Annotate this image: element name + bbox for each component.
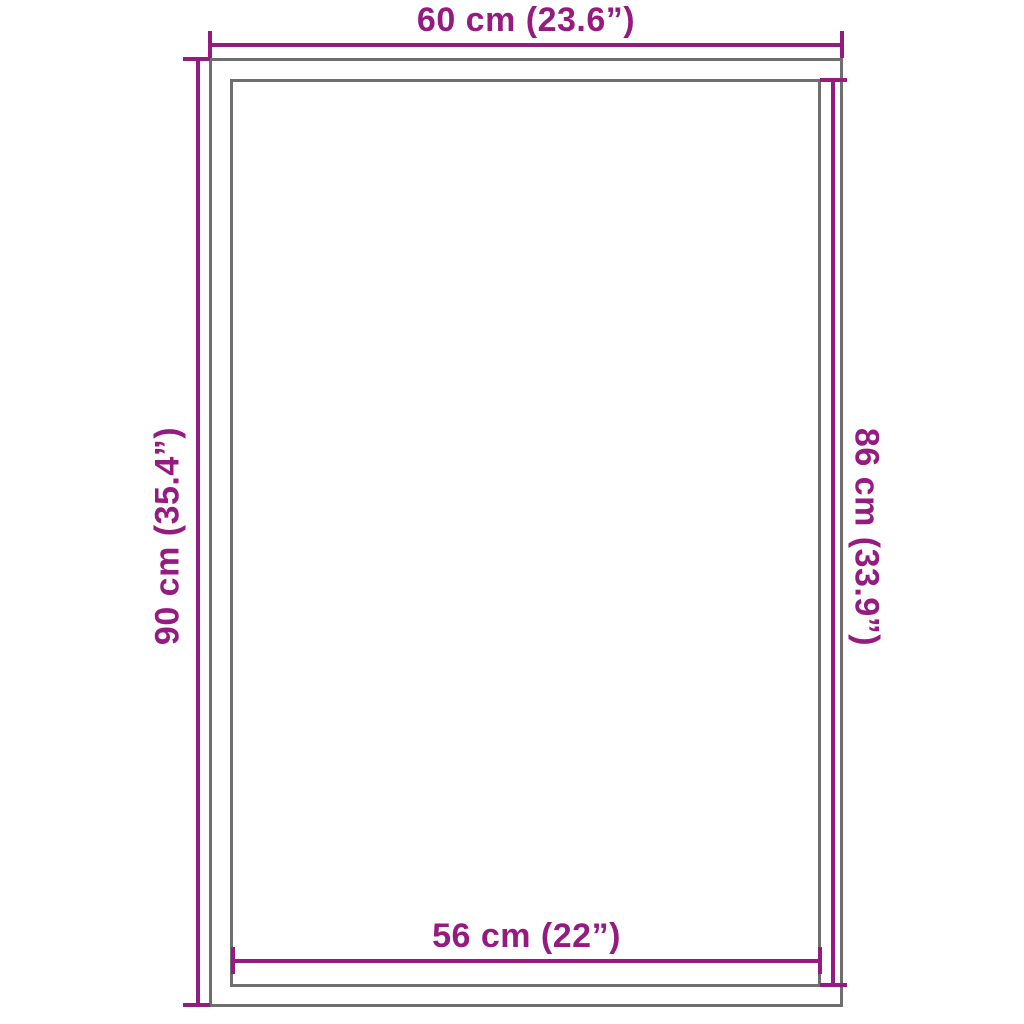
left-dimension-line	[196, 58, 200, 1007]
dimension-diagram: 60 cm (23.6”) 90 cm (35.4”) 86 cm (33.9”…	[0, 0, 1024, 1024]
bottom-dimension-line	[232, 959, 821, 963]
bottom-dimension-label: 56 cm (22”)	[232, 917, 821, 956]
right-dimension-tick-end	[820, 983, 847, 987]
top-dimension-line	[209, 43, 843, 47]
left-dimension-tick-start	[183, 57, 210, 61]
inner-rectangle	[230, 79, 821, 987]
right-dimension-line	[831, 79, 835, 987]
left-dimension-tick-end	[183, 1003, 210, 1007]
right-dimension-label: 86 cm (33.9”)	[847, 428, 886, 646]
top-dimension-label: 60 cm (23.6”)	[209, 1, 843, 40]
left-dimension-label: 90 cm (35.4”)	[149, 427, 188, 645]
right-dimension-tick-start	[820, 78, 847, 82]
